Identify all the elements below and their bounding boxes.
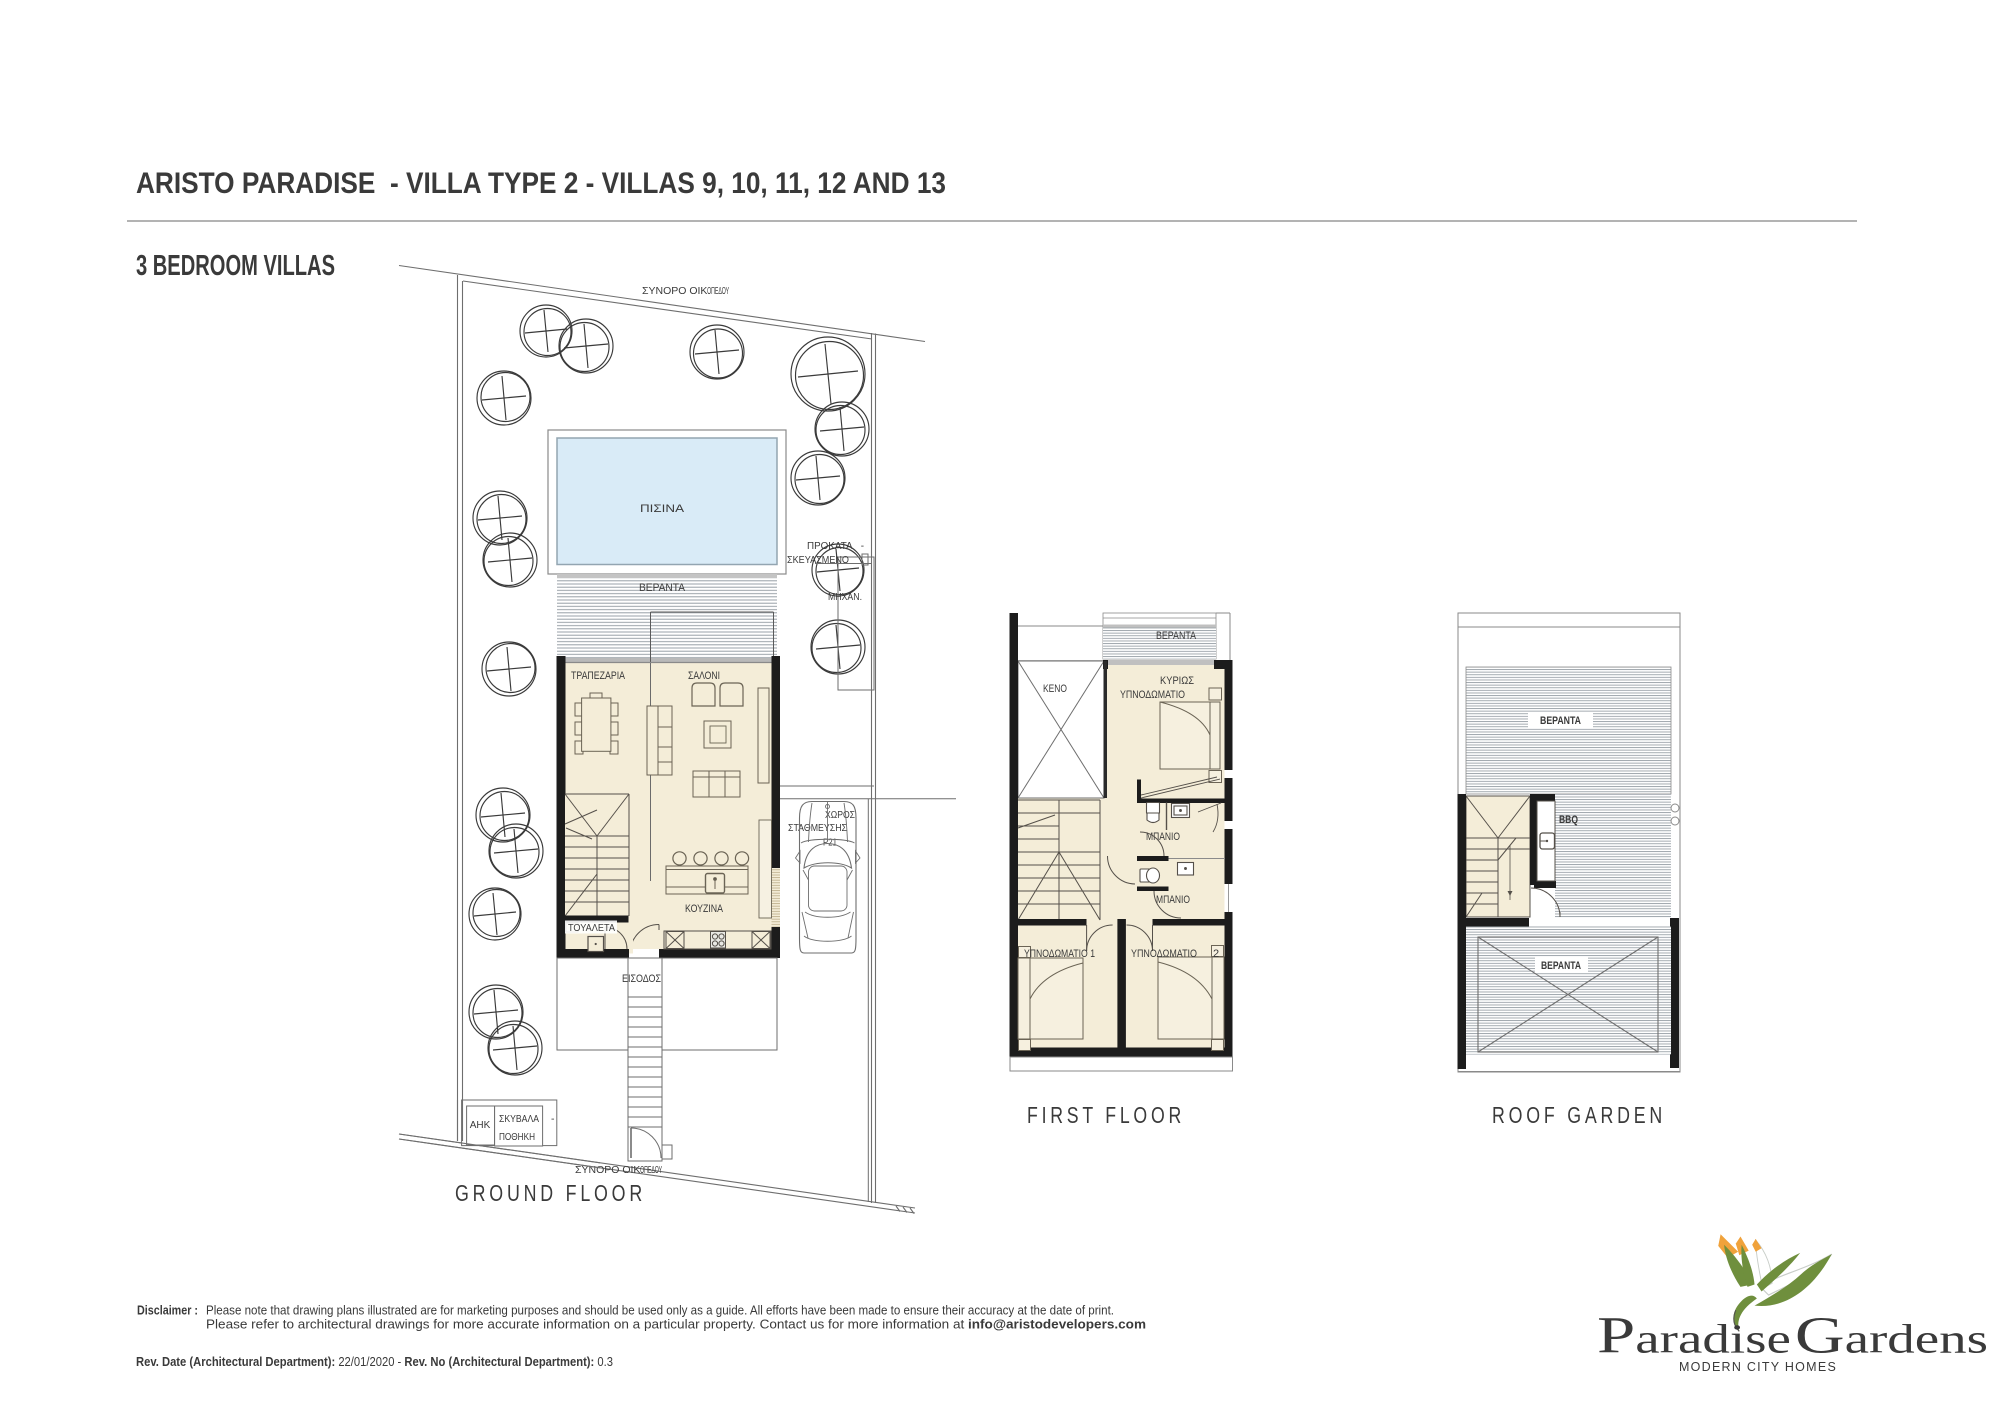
svg-text:ΒΕΡΑΝΤΑ: ΒΕΡΑΝΤΑ [1541, 960, 1581, 972]
svg-text:BBQ: BBQ [1559, 814, 1578, 826]
svg-text:MODERN CITY HOMES: MODERN CITY HOMES [1679, 1360, 1839, 1374]
svg-text:GROUND FLOOR: GROUND FLOOR [455, 1180, 646, 1206]
svg-text:ROOF GARDEN: ROOF GARDEN [1492, 1102, 1666, 1128]
svg-text:2: 2 [1213, 948, 1219, 960]
svg-text:Please note that drawing plans: Please note that drawing plans illustrat… [206, 1304, 1114, 1318]
svg-text:ΠΡΟΚΑΤΑ -: ΠΡΟΚΑΤΑ - [807, 540, 864, 552]
svg-text:ΣΑΛΟΝΙ: ΣΑΛΟΝΙ [688, 670, 720, 682]
svg-text:ΒΕΡΑΝΤΑ: ΒΕΡΑΝΤΑ [1156, 630, 1197, 642]
svg-text:ΜΗΧΑΝ.: ΜΗΧΑΝ. [828, 591, 862, 603]
svg-text:ΠΟΘΗΚΗ: ΠΟΘΗΚΗ [499, 1132, 535, 1143]
svg-text:FIRST FLOOR: FIRST FLOOR [1027, 1102, 1185, 1128]
svg-text:Rev. Date (Architectural Depar: Rev. Date (Architectural Department): 22… [136, 1355, 613, 1369]
svg-text:ΣΚΥΒΑΛΑ: ΣΚΥΒΑΛΑ [499, 1114, 539, 1125]
svg-text:ΚΥΡΙΩΣ: ΚΥΡΙΩΣ [1160, 675, 1194, 687]
svg-text:ΣΥΝΟΡΟ ΟΙΚΟΠΕΔΟΥ: ΣΥΝΟΡΟ ΟΙΚΟΠΕΔΟΥ [642, 285, 729, 297]
svg-text:ΜΠΑΝΙΟ: ΜΠΑΝΙΟ [1146, 831, 1180, 843]
svg-text:ARISTO PARADISE - VILLA TYPE: ARISTO PARADISE - VILLA TYPE 2 - VILLAS … [136, 167, 946, 200]
svg-text:ΤΡΑΠΕΖΑΡΙΑ: ΤΡΑΠΕΖΑΡΙΑ [571, 670, 626, 682]
svg-text:ΒΕΡΑΝΤΑ: ΒΕΡΑΝΤΑ [639, 582, 686, 594]
svg-text:ΠΙΣΙΝΑ: ΠΙΣΙΝΑ [640, 503, 685, 515]
svg-text:ΥΠΝΟΔΩΜΑΤΙΟ: ΥΠΝΟΔΩΜΑΤΙΟ [1131, 948, 1197, 960]
svg-text:ΣΤΑΘΜΕΥΣΗΣ: ΣΤΑΘΜΕΥΣΗΣ [788, 822, 847, 834]
svg-text:Please refer to architectural: Please refer to architectural drawings f… [206, 1318, 1146, 1332]
svg-text:ΥΠΝΟΔΩΜΑΤΙΟ 1: ΥΠΝΟΔΩΜΑΤΙΟ 1 [1024, 948, 1095, 960]
svg-text:ΑΗΚ: ΑΗΚ [470, 1120, 491, 1131]
svg-text:ΤΟΥΑΛΕΤΑ: ΤΟΥΑΛΕΤΑ [568, 922, 615, 934]
svg-text:ΚΟΥΖΙΝΑ: ΚΟΥΖΙΝΑ [685, 903, 724, 915]
svg-text:-: - [551, 1113, 555, 1125]
svg-text:ΕΙΣΟΔΟΣ: ΕΙΣΟΔΟΣ [622, 973, 661, 985]
svg-text:ΥΠΝΟΔΩΜΑΤΙΟ: ΥΠΝΟΔΩΜΑΤΙΟ [1120, 689, 1185, 701]
svg-text:ΜΠΑΝΙΟ: ΜΠΑΝΙΟ [1156, 894, 1190, 906]
svg-text:P21: P21 [823, 837, 837, 849]
svg-text:Disclaimer :: Disclaimer : [137, 1304, 198, 1318]
svg-text:KENO: KENO [1043, 683, 1067, 695]
svg-text:ΣΚΕΥΑΣΜΕΝΟ: ΣΚΕΥΑΣΜΕΝΟ [787, 554, 849, 566]
svg-text:3 BEDROOM VILLAS: 3 BEDROOM VILLAS [136, 250, 335, 282]
svg-text:ΧΩΡΟΣ: ΧΩΡΟΣ [825, 809, 855, 821]
svg-text:ΒΕΡΑΝΤΑ: ΒΕΡΑΝΤΑ [1540, 715, 1581, 727]
